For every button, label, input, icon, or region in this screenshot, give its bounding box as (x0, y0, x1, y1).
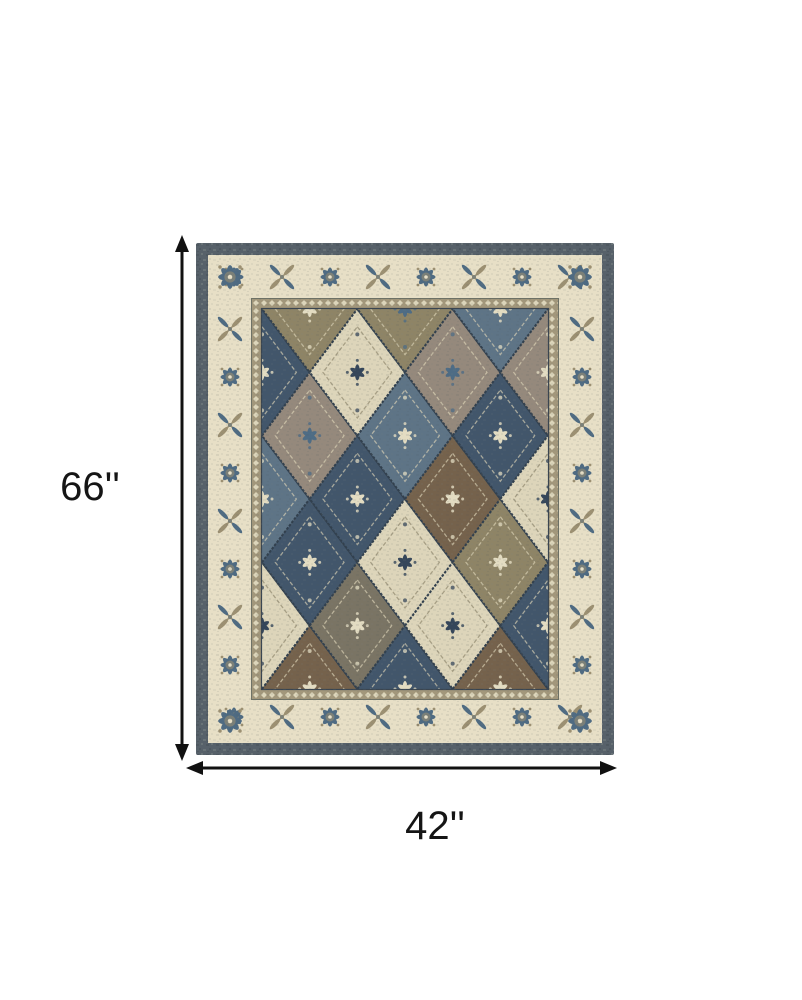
height-dimension-arrow (175, 235, 189, 761)
rug-image (196, 243, 614, 755)
width-dimension-label: 42'' (385, 804, 485, 848)
rug-artwork (196, 243, 614, 755)
product-dimension-diagram: 66'' 42'' (0, 0, 802, 1000)
height-dimension-label: 66'' (40, 465, 140, 509)
width-dimension-arrow (186, 761, 617, 775)
